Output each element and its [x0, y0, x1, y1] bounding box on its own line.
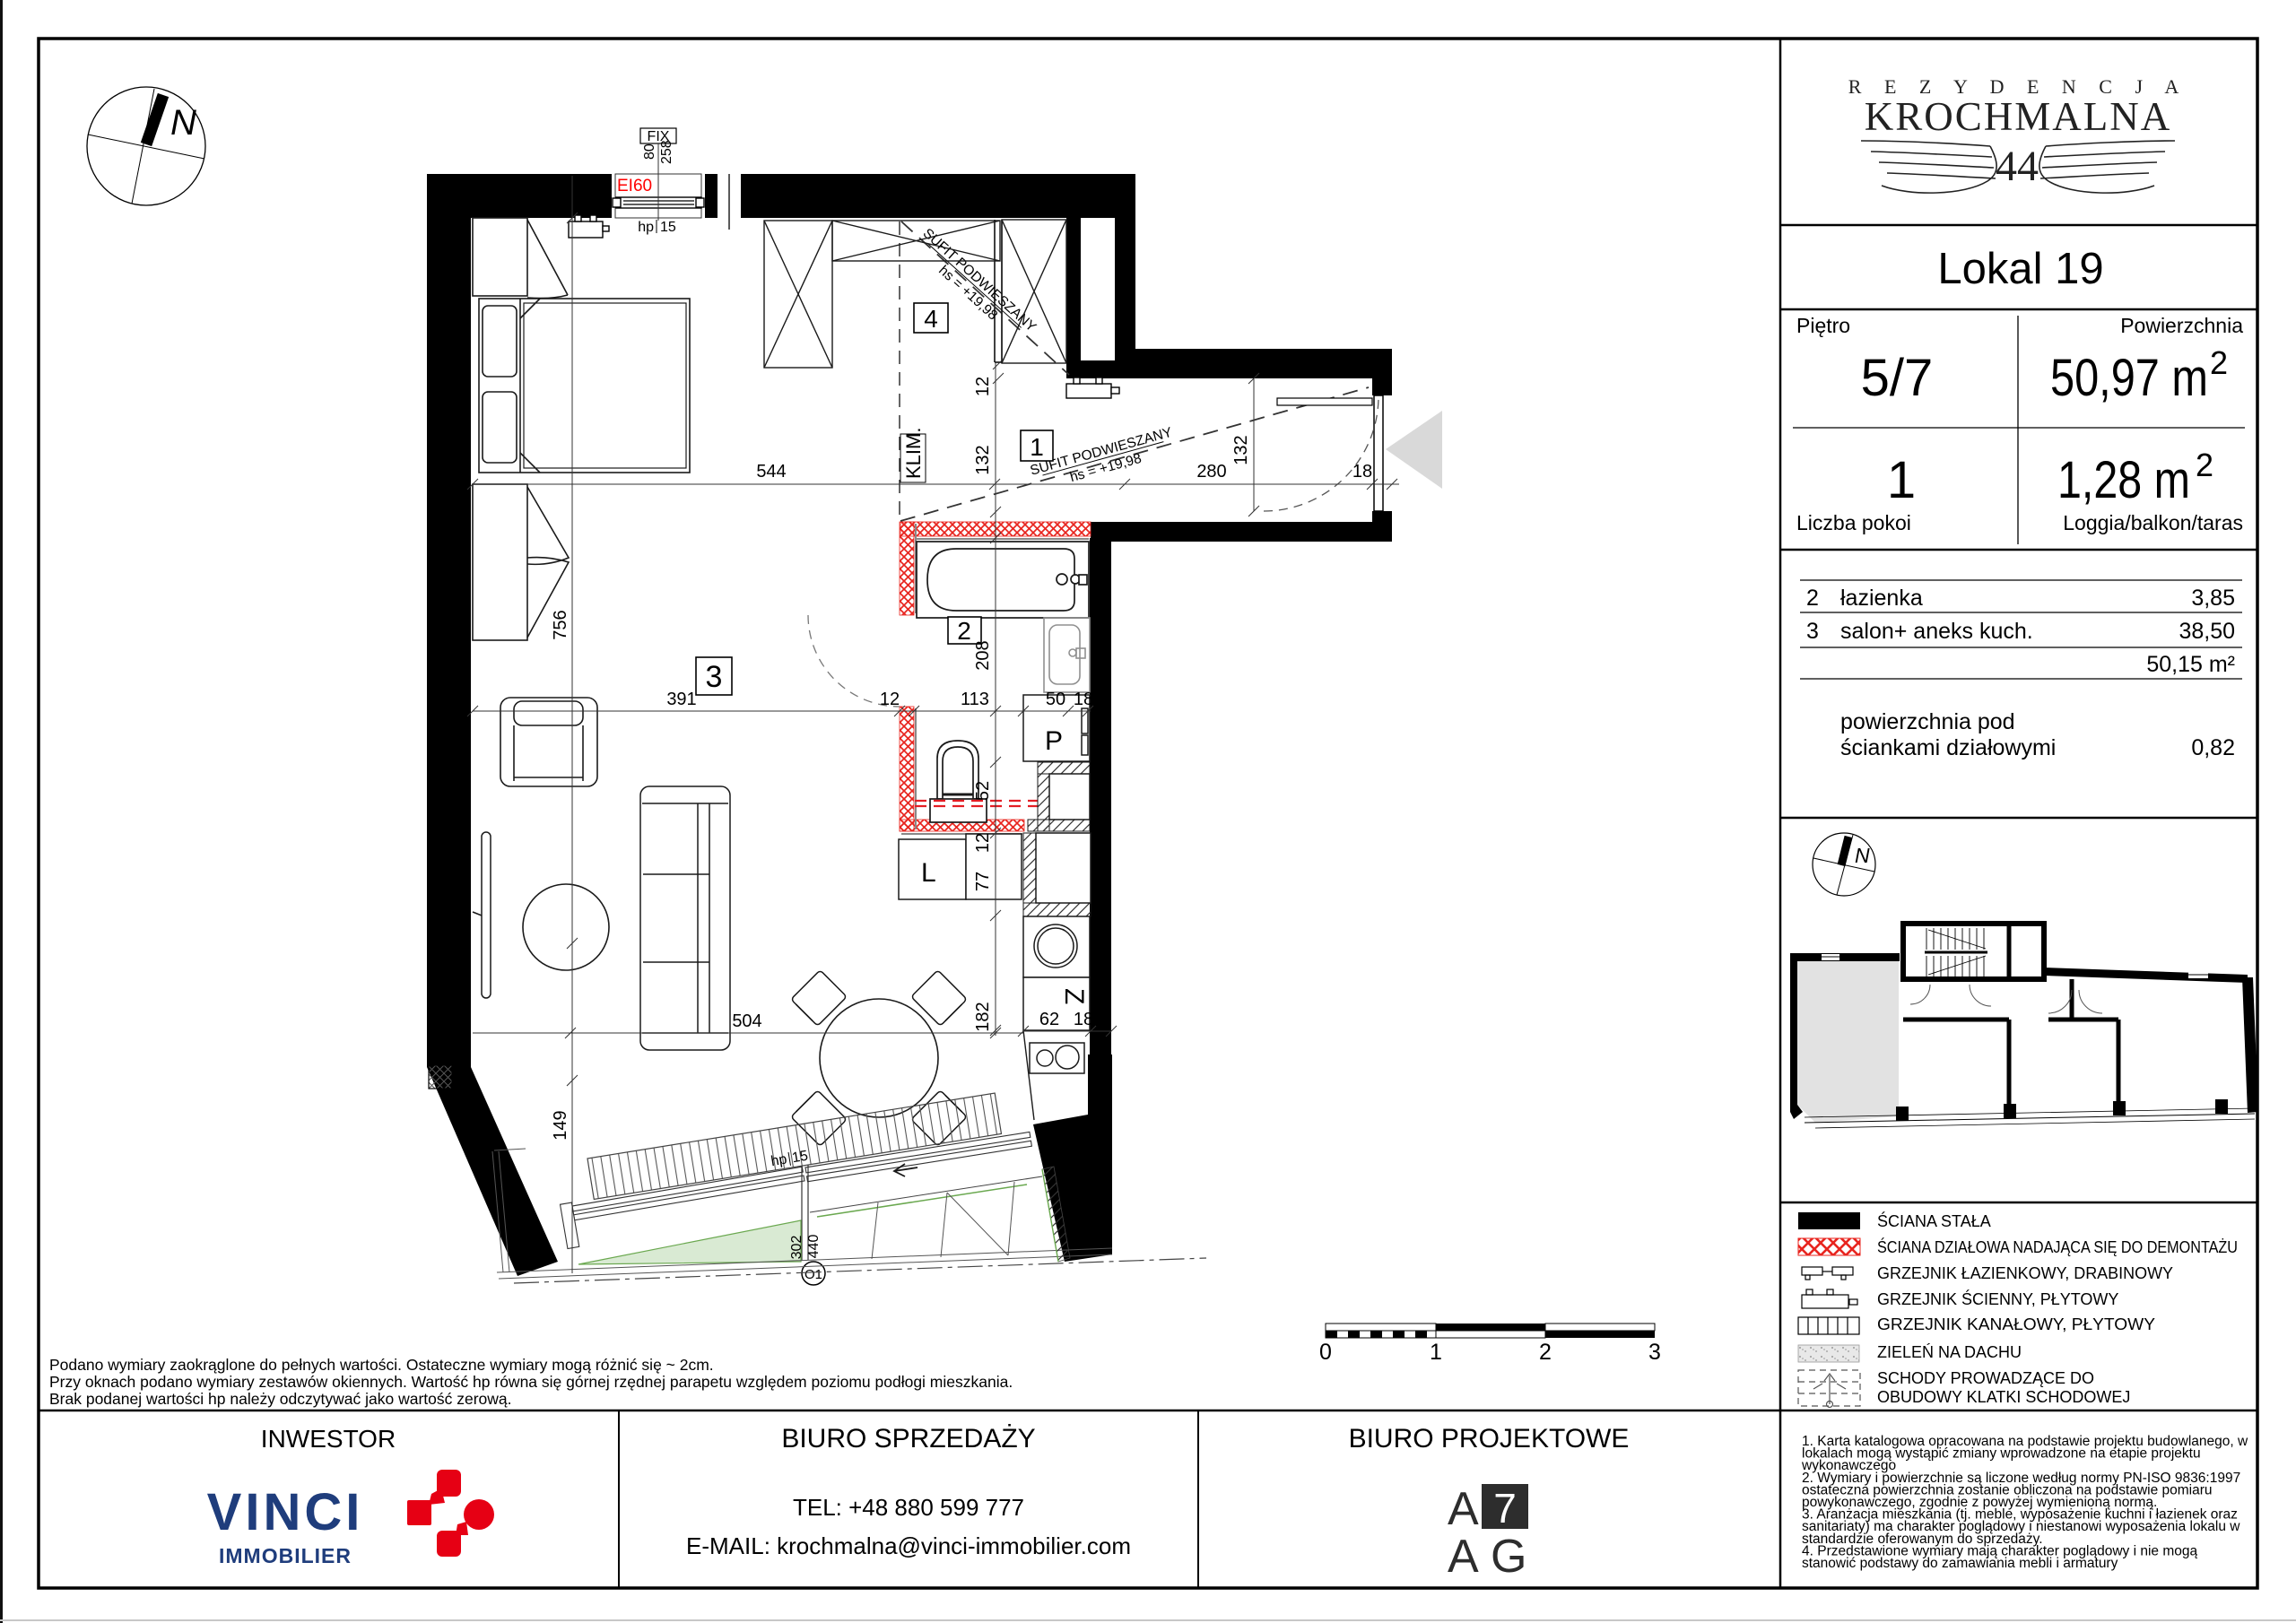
- svg-text:504: 504: [732, 1011, 761, 1031]
- svg-text:302: 302: [789, 1236, 804, 1260]
- svg-text:Brak podanej wartości hp należ: Brak podanej wartości hp należy odczytyw…: [49, 1390, 512, 1408]
- svg-text:38,50: 38,50: [2179, 619, 2235, 644]
- svg-text:3: 3: [1648, 1340, 1661, 1365]
- svg-text:50,15 m²: 50,15 m²: [2146, 652, 2235, 677]
- svg-text:ŚCIANA DZIAŁOWA NADAJĄCA SIĘ D: ŚCIANA DZIAŁOWA NADAJĄCA SIĘ DO DEMONTAŻ…: [1877, 1237, 2238, 1256]
- svg-text:A: A: [1448, 1483, 1479, 1535]
- svg-text:Piętro: Piętro: [1796, 314, 1850, 337]
- svg-text:ściankami działowymi: ściankami działowymi: [1840, 735, 2056, 760]
- svg-text:Loggia/balkon/taras: Loggia/balkon/taras: [2063, 511, 2243, 534]
- svg-text:VINCI: VINCI: [207, 1483, 364, 1541]
- svg-text:149: 149: [551, 1110, 570, 1140]
- svg-text:Powierzchnia: Powierzchnia: [2120, 314, 2243, 337]
- svg-text:440: 440: [806, 1235, 822, 1259]
- svg-text:OBUDOWY KLATKI SCHODOWEJ: OBUDOWY KLATKI SCHODOWEJ: [1877, 1388, 2130, 1406]
- svg-text:18: 18: [1352, 462, 1372, 482]
- svg-text:280: 280: [1196, 462, 1226, 482]
- svg-text:258: 258: [659, 140, 674, 164]
- svg-text:P: P: [1045, 726, 1063, 756]
- svg-text:IMMOBILIER: IMMOBILIER: [219, 1544, 352, 1567]
- svg-text:544: 544: [756, 462, 786, 482]
- svg-text:208: 208: [973, 640, 993, 670]
- svg-text:Z: Z: [1059, 988, 1089, 1004]
- svg-text:113: 113: [961, 690, 989, 709]
- svg-text:TEL: +48 880 599 777: TEL: +48 880 599 777: [793, 1494, 1024, 1521]
- svg-text:INWESTOR: INWESTOR: [261, 1425, 396, 1453]
- svg-text:łazienka: łazienka: [1840, 586, 1923, 611]
- svg-text:N: N: [1855, 844, 1870, 867]
- svg-text:salon+ aneks kuch.: salon+ aneks kuch.: [1840, 619, 2033, 644]
- svg-text:7: 7: [1493, 1485, 1517, 1532]
- svg-text:5/7: 5/7: [1861, 349, 1934, 407]
- svg-text:powierzchnia pod: powierzchnia pod: [1840, 709, 2015, 734]
- svg-text:77: 77: [973, 872, 993, 891]
- svg-text:2: 2: [1539, 1340, 1552, 1365]
- svg-text:stanowić podstawy do zamawiani: stanowić podstawy do zamawiania mebli i …: [1802, 1556, 2118, 1571]
- svg-text:E-MAIL: krochmalna@vinci-immob: E-MAIL: krochmalna@vinci-immobilier.com: [686, 1532, 1131, 1559]
- svg-text:Podano wymiary zaokrąglone do: Podano wymiary zaokrąglone do pełnych wa…: [49, 1356, 714, 1374]
- svg-text:132: 132: [973, 445, 993, 474]
- svg-text:52: 52: [973, 781, 993, 801]
- svg-text:BIURO SPRZEDAŻY: BIURO SPRZEDAŻY: [781, 1424, 1035, 1454]
- svg-text:Przy oknach podano wymiary zes: Przy oknach podano wymiary zestawów okie…: [49, 1373, 1013, 1391]
- svg-text:391: 391: [666, 690, 696, 709]
- svg-text:2: 2: [2196, 447, 2213, 483]
- svg-text:BIURO PROJEKTOWE: BIURO PROJEKTOWE: [1349, 1424, 1630, 1454]
- svg-text:L: L: [921, 858, 936, 888]
- svg-text:ŚCIANA STAŁA: ŚCIANA STAŁA: [1877, 1211, 1991, 1230]
- svg-text:KROCHMALNA: KROCHMALNA: [1865, 94, 2172, 139]
- svg-text:18: 18: [1074, 1010, 1093, 1029]
- svg-text:50,97 m: 50,97 m: [2050, 349, 2208, 407]
- svg-text:44: 44: [1996, 143, 2039, 190]
- svg-text:EI60: EI60: [617, 177, 652, 195]
- svg-text:62: 62: [1039, 1010, 1059, 1029]
- svg-text:132: 132: [1231, 435, 1251, 464]
- svg-text:2: 2: [1806, 586, 1819, 611]
- svg-text:Liczba pokoi: Liczba pokoi: [1796, 511, 1911, 534]
- svg-text:1: 1: [1887, 451, 1916, 509]
- svg-text:SCHODY PROWADZĄCE DO: SCHODY PROWADZĄCE DO: [1877, 1369, 2094, 1387]
- svg-text:12: 12: [973, 377, 993, 396]
- svg-text:756: 756: [551, 610, 570, 639]
- svg-text:1: 1: [1030, 433, 1044, 461]
- svg-text:1: 1: [1430, 1340, 1442, 1365]
- svg-text:0: 0: [1319, 1340, 1332, 1365]
- svg-text:0,82: 0,82: [2191, 735, 2235, 760]
- svg-text:182: 182: [973, 1002, 993, 1031]
- svg-text:3,85: 3,85: [2191, 586, 2235, 611]
- svg-text:50: 50: [1046, 690, 1065, 709]
- svg-text:2: 2: [957, 617, 971, 645]
- svg-text:GRZEJNIK ŁAZIENKOWY, DRABINOWY: GRZEJNIK ŁAZIENKOWY, DRABINOWY: [1877, 1264, 2173, 1282]
- svg-text:N: N: [170, 103, 196, 143]
- svg-text:2: 2: [2210, 344, 2228, 381]
- svg-text:hp: hp: [770, 1151, 787, 1169]
- svg-text:GRZEJNIK KANAŁOWY, PŁYTOWY: GRZEJNIK KANAŁOWY, PŁYTOWY: [1877, 1315, 2155, 1333]
- svg-text:80: 80: [642, 143, 657, 160]
- svg-text:Lokal 19: Lokal 19: [1937, 245, 2103, 293]
- svg-text:hp: hp: [638, 220, 654, 235]
- svg-text:O1: O1: [804, 1267, 822, 1282]
- svg-text:G: G: [1491, 1531, 1526, 1583]
- svg-text:KLIM.: KLIM.: [902, 428, 925, 479]
- svg-text:A: A: [1448, 1531, 1479, 1583]
- svg-text:ZIELEŃ NA DACHU: ZIELEŃ NA DACHU: [1877, 1343, 2022, 1361]
- svg-text:12: 12: [973, 833, 993, 853]
- svg-text:3: 3: [1806, 619, 1819, 644]
- svg-text:1,28 m: 1,28 m: [2057, 451, 2190, 509]
- svg-text:GRZEJNIK ŚCIENNY, PŁYTOWY: GRZEJNIK ŚCIENNY, PŁYTOWY: [1877, 1289, 2118, 1308]
- svg-text:15: 15: [660, 220, 676, 235]
- svg-text:4: 4: [924, 305, 938, 333]
- svg-text:12: 12: [880, 690, 900, 709]
- svg-text:3: 3: [706, 660, 723, 694]
- svg-text:15: 15: [791, 1149, 809, 1167]
- svg-text:18: 18: [1074, 690, 1093, 709]
